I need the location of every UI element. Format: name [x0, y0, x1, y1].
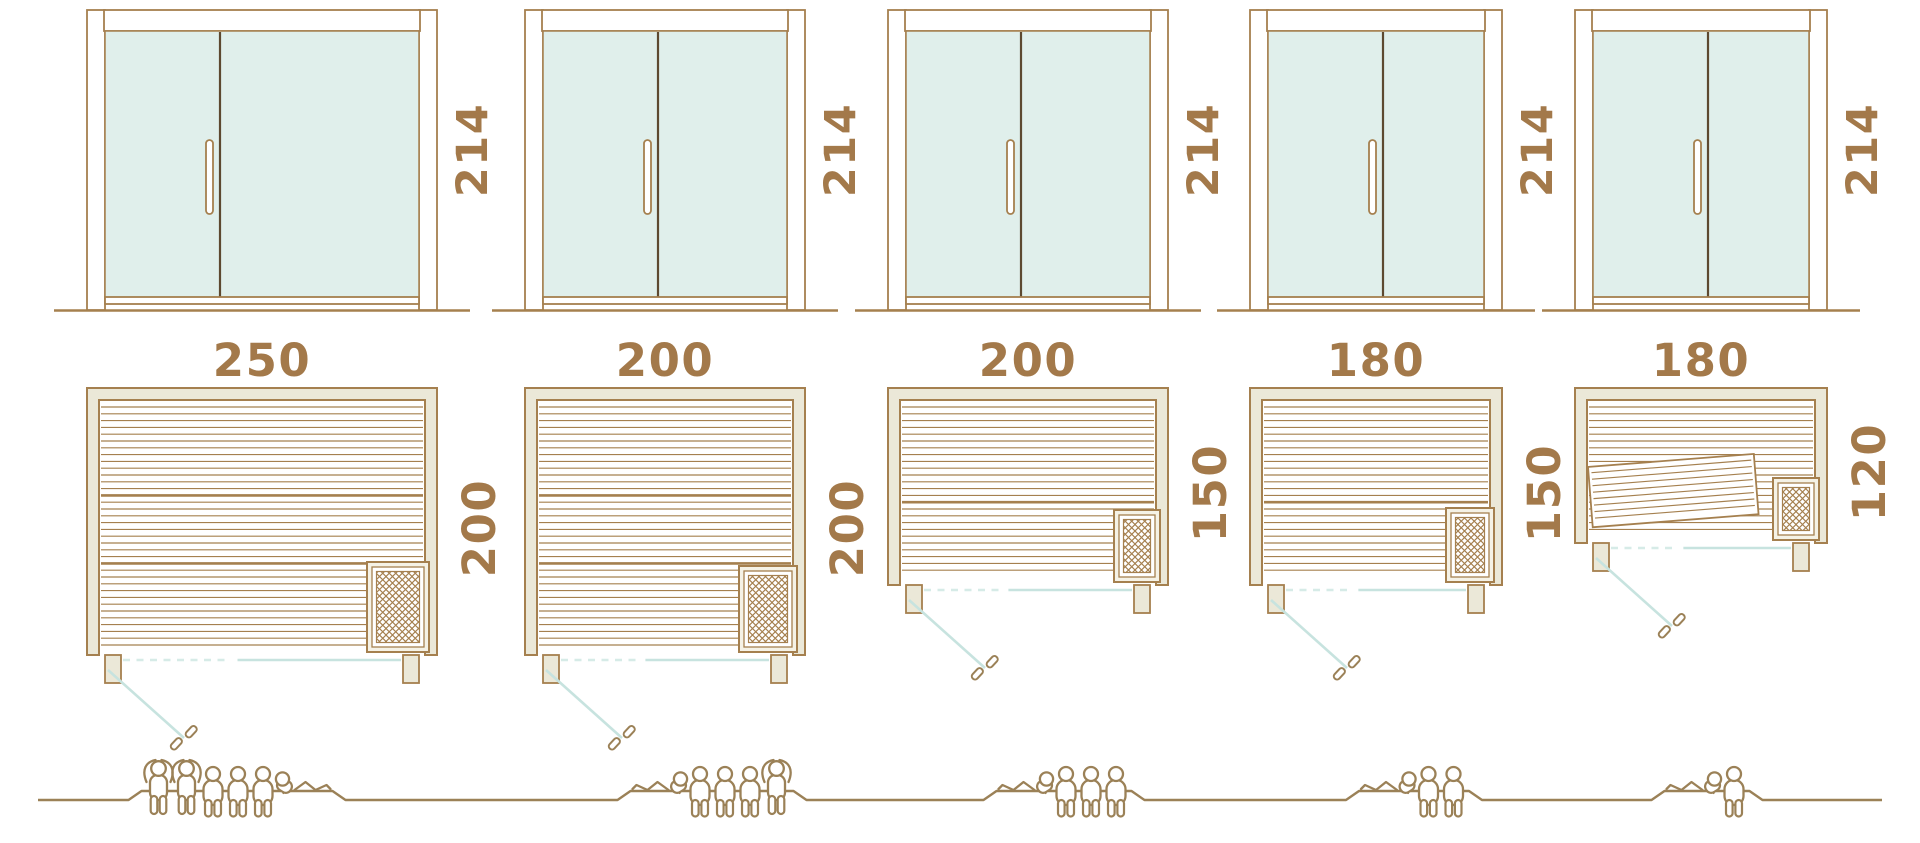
door-right-post — [419, 10, 437, 310]
sitting-person-icon — [254, 767, 273, 817]
door-left-post — [1575, 10, 1593, 310]
plan-width-label: 200 — [616, 334, 714, 387]
sitting-person-icon — [1725, 767, 1744, 817]
door-glass-panels — [105, 31, 419, 299]
door-left-post — [525, 10, 543, 310]
heater-icon — [1446, 508, 1494, 582]
door-sill — [1268, 297, 1484, 304]
door-swing-line — [108, 670, 184, 738]
door-handle-icon — [206, 140, 213, 214]
door-left-post — [1250, 10, 1268, 310]
sauna-size-comparison-diagram: 2142502002142002002142001502141801502141… — [0, 0, 1920, 843]
door-elevation-4 — [1250, 10, 1502, 310]
door-sill — [906, 297, 1150, 304]
door-sill — [543, 297, 787, 304]
sitting-person-icon — [1107, 767, 1126, 817]
plan-width-label: 250 — [213, 334, 311, 387]
plan-depth-label: 120 — [1843, 423, 1896, 521]
door-header — [542, 10, 788, 31]
plan-depth-label: 150 — [1518, 444, 1571, 542]
sitting-person-icon — [204, 767, 223, 817]
standing-person-icon — [172, 760, 200, 814]
door-height-label: 214 — [448, 103, 498, 197]
door-header — [104, 10, 420, 31]
sitting-person-icon — [1444, 767, 1463, 817]
door-handle-icon — [1369, 140, 1376, 214]
capacity-group-2 — [633, 760, 791, 817]
standing-person-icon — [144, 760, 172, 814]
door-left-post — [888, 10, 906, 310]
door-sill — [1593, 297, 1809, 304]
sitting-person-icon — [1419, 767, 1438, 817]
sitting-person-icon — [1082, 767, 1101, 817]
door-swing-line — [1596, 558, 1672, 626]
door-right-post — [1484, 10, 1502, 310]
floor-plan-4: 150 — [1250, 388, 1571, 683]
floor-plan-1: 200 — [87, 388, 506, 753]
sitting-person-icon — [691, 767, 710, 817]
door-sill — [105, 297, 419, 304]
capacity-ground-line — [38, 791, 1882, 800]
capacity-group-1 — [144, 760, 330, 817]
door-right-post — [1809, 10, 1827, 310]
sauna-unit-4: 214180150 — [1217, 10, 1571, 683]
plan-depth-label: 200 — [821, 479, 874, 577]
plan-right-foot — [1134, 585, 1150, 613]
diagram-svg: 2142502002142002002142001502141801502141… — [0, 0, 1920, 843]
sauna-unit-2: 214200200 — [492, 10, 874, 753]
sauna-unit-3: 214200150 — [855, 10, 1237, 683]
tilted-bench — [1588, 454, 1759, 527]
door-height-label: 214 — [1513, 103, 1563, 197]
heater-icon — [367, 562, 429, 652]
door-elevation-3 — [888, 10, 1168, 310]
heater-icon — [1773, 478, 1819, 540]
door-header — [905, 10, 1151, 31]
floor-plan-3: 150 — [888, 388, 1237, 683]
plan-right-foot — [1468, 585, 1484, 613]
door-height-label: 214 — [816, 103, 866, 197]
sitting-person-icon — [1057, 767, 1076, 817]
plan-width-label: 180 — [1652, 334, 1750, 387]
plan-depth-label: 150 — [1184, 444, 1237, 542]
door-left-post — [87, 10, 105, 310]
sauna-unit-5: 214180120 — [1542, 10, 1896, 641]
plan-right-foot — [1793, 543, 1809, 571]
door-swing-line — [909, 600, 985, 668]
door-header — [1592, 10, 1810, 31]
plan-width-label: 200 — [979, 334, 1077, 387]
door-handle-icon — [644, 140, 651, 214]
plan-right-foot — [771, 655, 787, 683]
door-swing-line — [546, 670, 622, 738]
door-handle-icon — [1007, 140, 1014, 214]
door-elevation-2 — [525, 10, 805, 310]
door-swing-line — [1271, 600, 1347, 668]
sitting-person-icon — [716, 767, 735, 817]
door-glass-panels — [906, 31, 1150, 299]
door-header — [1267, 10, 1485, 31]
sitting-person-icon — [229, 767, 248, 817]
floor-plan-5: 120 — [1575, 388, 1896, 641]
standing-person-icon — [762, 760, 790, 814]
door-elevation-5 — [1575, 10, 1827, 310]
door-right-post — [787, 10, 805, 310]
sitting-person-icon — [741, 767, 760, 817]
door-glass-panels — [543, 31, 787, 299]
plan-depth-label: 200 — [453, 479, 506, 577]
door-height-label: 214 — [1179, 103, 1229, 197]
door-right-post — [1150, 10, 1168, 310]
floor-plan-2: 200 — [525, 388, 874, 753]
heater-icon — [1114, 510, 1160, 582]
heater-icon — [739, 566, 797, 652]
plan-right-foot — [403, 655, 419, 683]
door-elevation-1 — [87, 10, 437, 310]
door-height-label: 214 — [1838, 103, 1888, 197]
door-handle-icon — [1694, 140, 1701, 214]
plan-width-label: 180 — [1327, 334, 1425, 387]
sauna-unit-1: 214250200 — [54, 10, 506, 753]
